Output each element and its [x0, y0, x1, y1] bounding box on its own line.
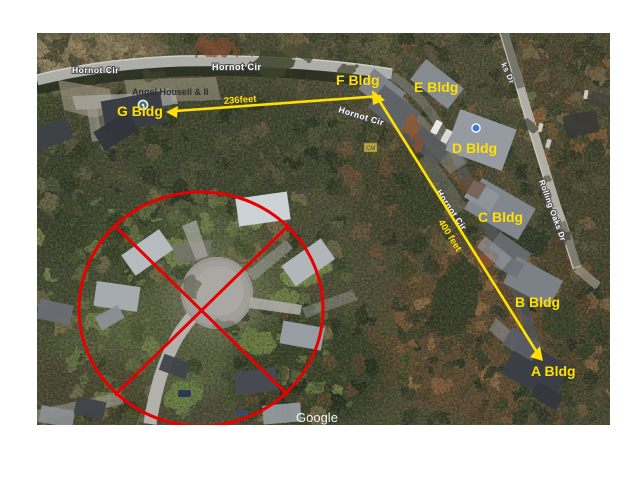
svg-text:E Bldg: E Bldg [414, 79, 458, 95]
svg-text:A Bldg: A Bldg [531, 363, 576, 379]
svg-text:Hornot Cir: Hornot Cir [72, 65, 119, 75]
svg-text:Google: Google [296, 410, 338, 425]
svg-text:CM: CM [366, 146, 375, 152]
svg-text:C Bldg: C Bldg [478, 209, 523, 225]
svg-text:Hornot Cir: Hornot Cir [212, 62, 262, 72]
svg-text:Angel Housell & II: Angel Housell & II [132, 87, 209, 97]
svg-text:F Bldg: F Bldg [336, 72, 380, 88]
svg-text:G Bldg: G Bldg [117, 103, 163, 119]
svg-text:D Bldg: D Bldg [452, 140, 497, 156]
svg-text:236feet: 236feet [223, 94, 257, 107]
svg-text:B Bldg: B Bldg [515, 294, 560, 310]
